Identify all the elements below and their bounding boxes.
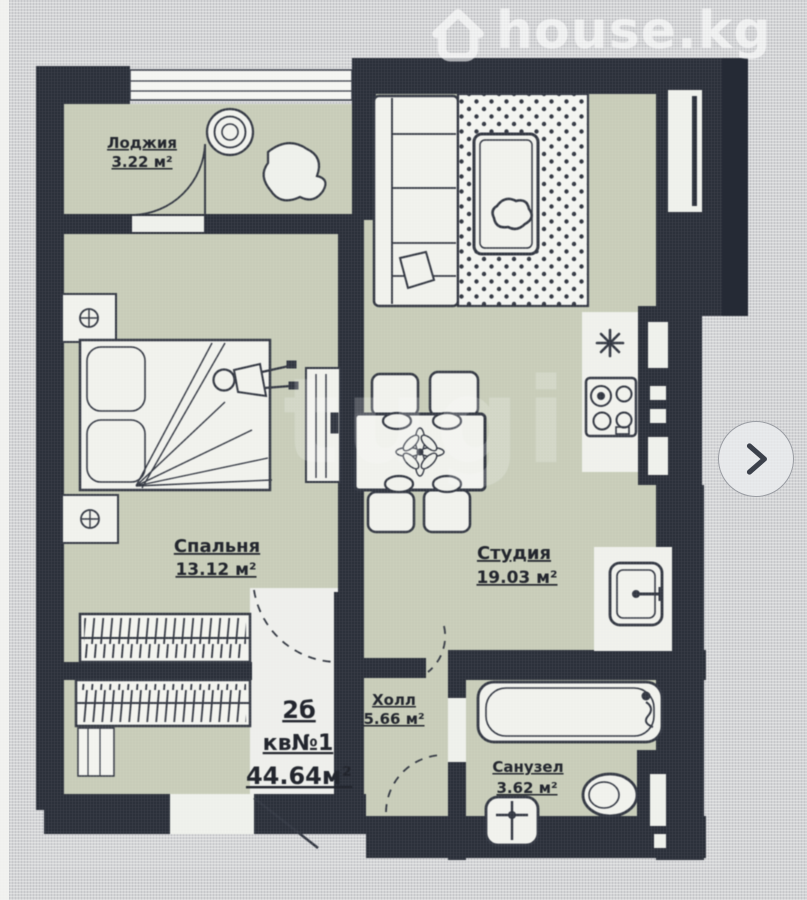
chevron-right-icon (742, 440, 770, 478)
room-name-loggia: Лоджия (107, 134, 177, 152)
room-name-bedroom: Спальня (174, 536, 260, 557)
room-area-studio: 19.03 м² (476, 568, 557, 588)
photo-edge (0, 0, 9, 900)
center-watermark: tugi (283, 352, 572, 490)
floor-plan-photo: Лоджия 3.22 м² Спальня 13.12 м² Студия 1… (0, 0, 807, 900)
room-name-hall: Холл (372, 691, 416, 709)
room-area-loggia: 3.22 м² (111, 153, 172, 171)
next-photo-button[interactable] (718, 421, 794, 497)
room-area-bedroom: 13.12 м² (175, 560, 256, 580)
room-name-studio: Студия (477, 543, 551, 564)
brand-watermark-text: house.kg (496, 1, 772, 61)
house-icon (428, 0, 488, 62)
room-area-hall: 5.66 м² (363, 710, 424, 728)
apartment-type: 2б (282, 696, 315, 724)
apartment-area: 44.64м² (246, 762, 352, 790)
room-area-bathroom: 3.62 м² (496, 779, 557, 797)
apartment-unit: кв№1 (263, 731, 334, 756)
room-name-bathroom: Санузел (492, 758, 563, 776)
screenshot-root: Лоджия 3.22 м² Спальня 13.12 м² Студия 1… (0, 0, 807, 900)
brand-watermark: house.kg (428, 0, 772, 62)
